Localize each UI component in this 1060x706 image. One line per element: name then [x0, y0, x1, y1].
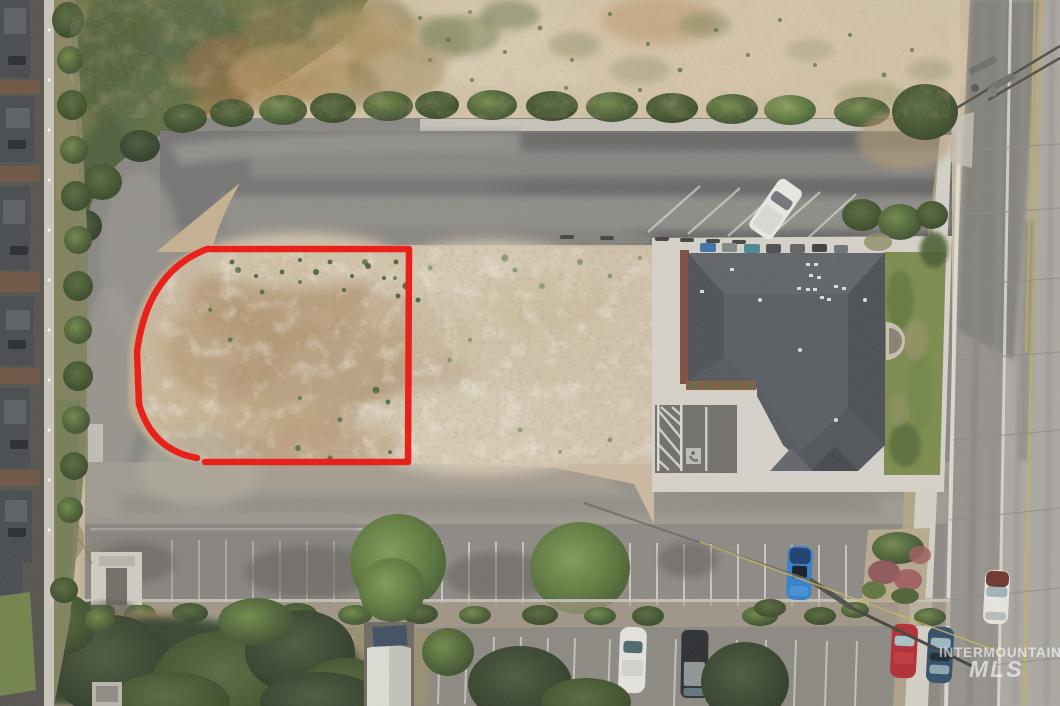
svg-text:MLS: MLS — [969, 656, 1024, 682]
